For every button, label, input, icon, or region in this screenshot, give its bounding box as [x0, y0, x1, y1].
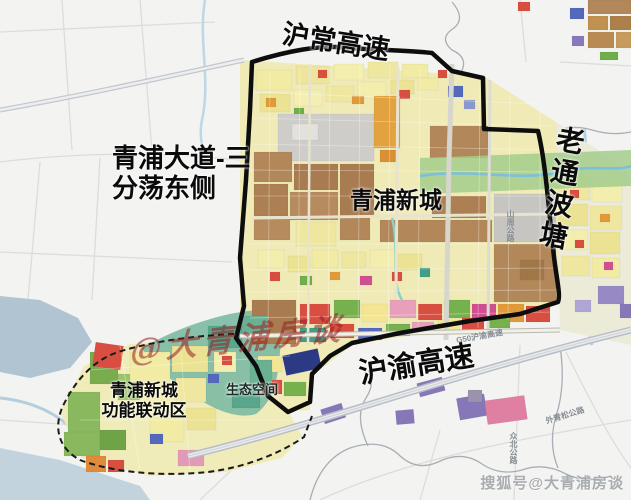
label-linkage-line1: 青浦新城	[84, 381, 204, 401]
label-eco-space: 生态空间	[226, 379, 278, 398]
label-qingpu-avenue-line2: 分荡东侧	[112, 173, 251, 203]
label-qingpu-new-city: 青浦新城	[350, 181, 442, 215]
label-shanzhou-road: 山周公路	[505, 210, 516, 272]
label-qingpu-avenue: 青浦大道-三 分荡东侧	[112, 143, 251, 203]
label-linkage-line2: 功能联动区	[84, 401, 204, 421]
planning-map-screenshot: 沪常高速 青浦大道-三 分荡东侧 青浦新城 老通波塘 沪渝高速 青浦新城 功能联…	[0, 0, 631, 500]
label-linkage-zone: 青浦新城 功能联动区	[84, 381, 204, 422]
watermark-sohu: 搜狐号@大青浦房谈	[480, 472, 624, 493]
label-qingpu-avenue-line1: 青浦大道-三	[112, 143, 251, 173]
